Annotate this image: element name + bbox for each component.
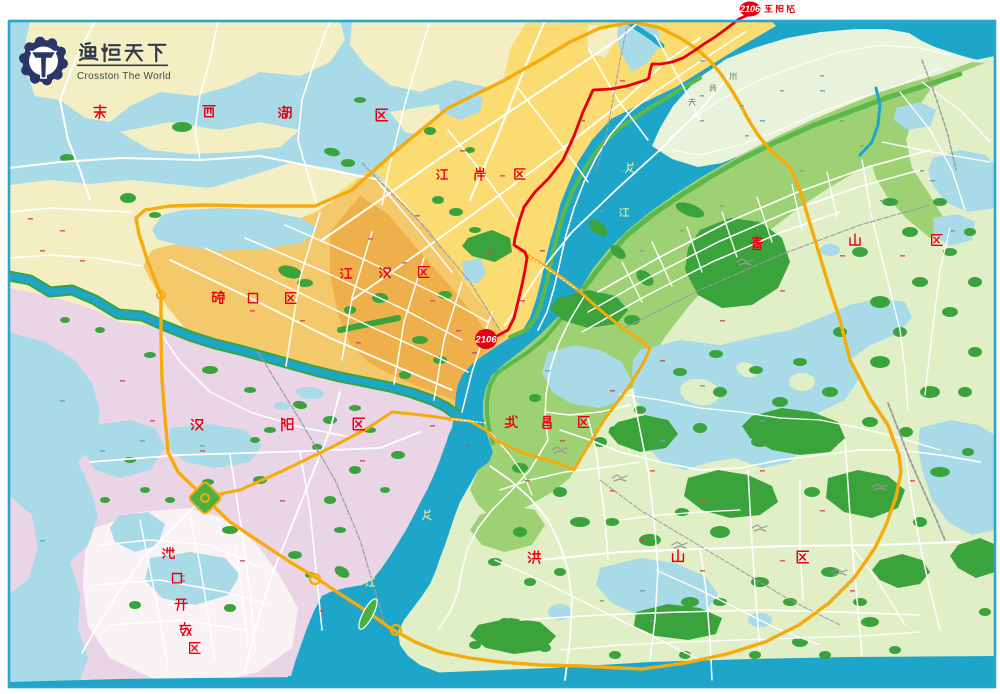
svg-text:2106: 2106 [474,335,497,346]
svg-text:Crosston The World: Crosston The World [77,71,171,82]
svg-text:2106: 2106 [739,4,761,14]
